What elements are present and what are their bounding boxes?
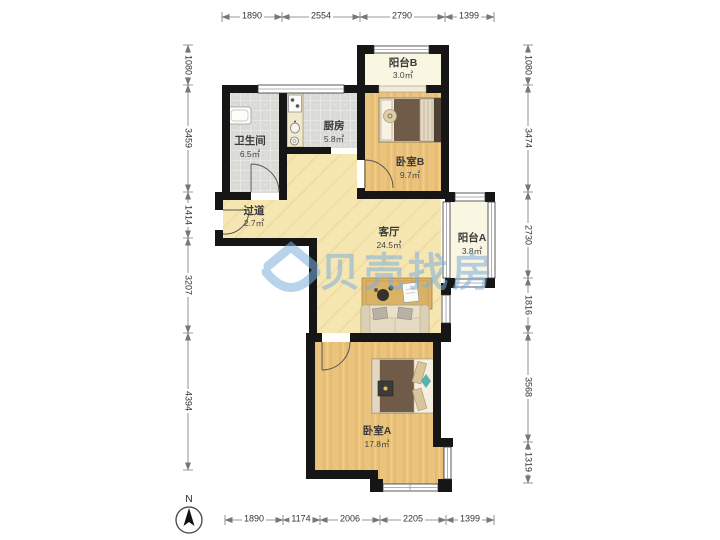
dim-right-2: 3474 [524, 126, 533, 150]
room-area-bedroom-b: 9.7㎡ [400, 171, 420, 180]
compass-icon [176, 507, 202, 533]
dim-bottom-3: 2006 [338, 515, 362, 524]
dim-right-4: 1816 [524, 293, 533, 317]
floor-plan-canvas: 阳台B 3.0㎡ 卫生间 6.5㎡ 厨房 5.8㎡ 卧室B 9.7㎡ 过道 2.… [0, 0, 720, 540]
compass-north-label: N [185, 495, 192, 505]
room-label-hallway: 过道 [244, 206, 265, 217]
room-area-living: 24.5㎡ [376, 241, 401, 250]
dim-top-3: 2790 [390, 12, 414, 21]
watermark-logo-icon [266, 247, 316, 288]
bed-a-icon [372, 359, 434, 413]
room-label-balcony-a: 阳台A [458, 233, 487, 244]
balcony-b-sill [379, 86, 426, 92]
dim-top-4: 1399 [457, 12, 481, 21]
dim-bottom-4: 2205 [401, 515, 425, 524]
room-label-bedroom-b: 卧室B [396, 157, 425, 168]
dim-left-1: 1080 [184, 53, 193, 77]
bed-b-icon [379, 98, 441, 142]
dim-left-5: 4394 [184, 389, 193, 413]
room-label-balcony-b: 阳台B [389, 58, 418, 69]
dim-left-2: 3459 [184, 126, 193, 150]
dim-bottom-1: 1890 [242, 515, 266, 524]
room-label-bathroom: 卫生间 [234, 136, 266, 147]
dim-top-1: 1890 [240, 12, 264, 21]
dim-right-3: 2730 [524, 223, 533, 247]
dim-right-5: 3568 [524, 375, 533, 399]
dim-bottom-2: 1174 [289, 515, 312, 524]
dim-left-3: 1414 [184, 203, 193, 227]
room-area-bedroom-a: 17.8㎡ [364, 440, 389, 449]
room-area-hallway: 2.7㎡ [244, 219, 264, 228]
kitchen-counter-icon [287, 93, 303, 147]
watermark-text: 贝壳找房 [320, 253, 496, 293]
bathtub-icon [228, 107, 251, 124]
room-area-balcony-b: 3.0㎡ [393, 71, 413, 80]
dim-right-6: 1319 [524, 450, 533, 474]
room-label-living: 客厅 [379, 227, 400, 238]
room-area-bathroom: 6.5㎡ [240, 150, 260, 159]
dim-bottom-5: 1399 [458, 515, 482, 524]
dim-top-2: 2554 [309, 12, 333, 21]
room-label-bedroom-a: 卧室A [363, 426, 392, 437]
sofa-icon [361, 305, 429, 337]
dim-left-4: 3207 [184, 273, 193, 297]
room-label-kitchen: 厨房 [324, 121, 345, 132]
room-area-kitchen: 5.8㎡ [324, 135, 344, 144]
dim-right-1: 1080 [524, 53, 533, 77]
